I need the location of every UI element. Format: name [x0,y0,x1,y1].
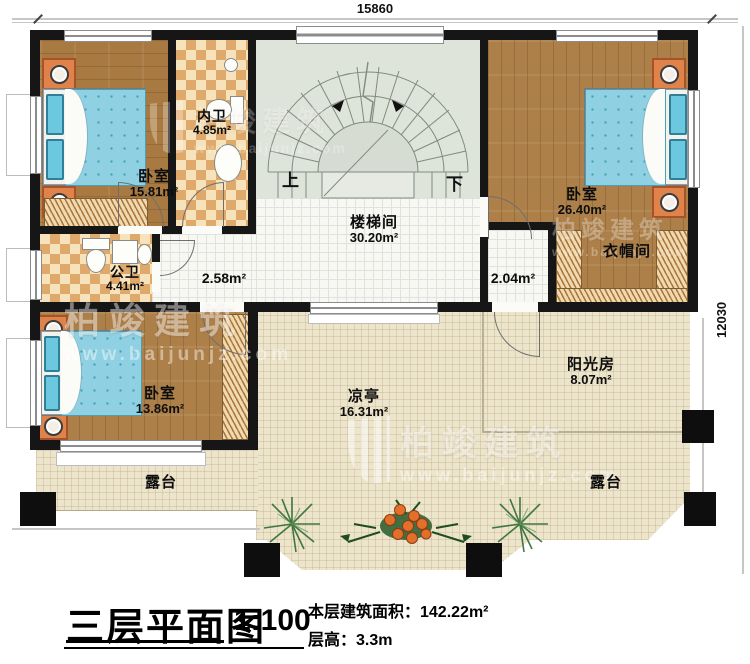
dimension-height: 12030 [714,262,732,338]
dimension-width: 15860 [340,1,410,16]
column [466,543,502,577]
washbasin [137,244,152,265]
area-label-corridor-right: 2.04m² [482,270,544,286]
window [64,30,152,42]
wall [248,30,256,234]
room-label-cloakroom: 衣帽间 [584,243,670,260]
window-sill [56,452,206,466]
title-underline2 [64,647,304,649]
column [244,543,280,577]
floor-plan: 15860 12030 [0,0,750,664]
window [30,340,42,426]
window [60,440,202,452]
drawing-scale: 1:100 [234,604,311,638]
title-underline [66,640,224,643]
lamp-icon [44,417,63,436]
column [20,492,56,526]
door-opening [492,302,538,312]
window [310,302,438,314]
stairs-up-label: 上 [282,166,299,191]
room-label-bedroom-topleft: 卧室 15.81m² [108,168,200,200]
dimension-line-top [12,18,738,20]
room-label-public-bath: 公卫 4.41m² [94,264,156,294]
nightstand [652,186,686,218]
column [684,492,716,526]
window-sill [308,314,440,324]
lamp-icon [660,65,679,84]
pillow [46,139,64,180]
wall [548,222,556,310]
floor-area-info: 本层建筑面积：142.22m² [308,598,489,622]
door-opening [480,197,488,237]
lamp-icon [660,193,679,212]
room-label-bedroom-topright: 卧室 26.40m² [536,186,628,218]
room-label-terrace-left: 露台 [130,474,192,491]
dimension-line-top2 [12,22,738,23]
door-opening [182,226,222,234]
pillow [44,375,60,411]
window [296,26,444,44]
wardrobe [556,230,582,290]
plants-icon [248,488,568,560]
window [556,30,658,42]
room-label-sunroom: 阳光房 8.07m² [542,356,640,388]
pillow [669,139,687,180]
room-label-bedroom-bottom: 卧室 13.86m² [114,385,206,417]
room-label-stair-hall: 楼梯间 30.20m² [328,214,420,246]
door-opening [118,226,162,234]
dimension-line-right [742,26,744,574]
sunroom-divider [482,431,688,433]
sunroom-divider [482,312,484,433]
bed [584,88,688,186]
window [688,90,700,188]
railing-line [702,318,704,496]
window [30,250,42,300]
room-label-terrace-right: 露台 [575,474,637,491]
lamp-icon [50,65,69,84]
sink [112,240,138,264]
shower-head-icon [224,58,238,72]
nightstand [38,412,68,440]
area-label-corridor-left: 2.58m² [192,270,256,286]
door-opening [200,302,244,312]
nightstand [42,58,76,90]
room-label-inner-bath: 内卫 4.85m² [184,108,240,138]
railing-line [12,528,260,530]
stairs-down-label: 下 [446,170,463,195]
wall [248,302,258,450]
pillow [44,336,60,372]
column [682,410,714,443]
washbasin [214,144,242,182]
pillow [46,94,64,135]
nightstand [652,58,686,90]
wall [480,30,488,197]
pillow [669,94,687,135]
floor-height-info: 层高：3.3m [308,626,392,650]
room-label-pavilion: 凉亭 16.31m² [318,388,410,420]
window [30,96,42,174]
wall [168,30,176,234]
